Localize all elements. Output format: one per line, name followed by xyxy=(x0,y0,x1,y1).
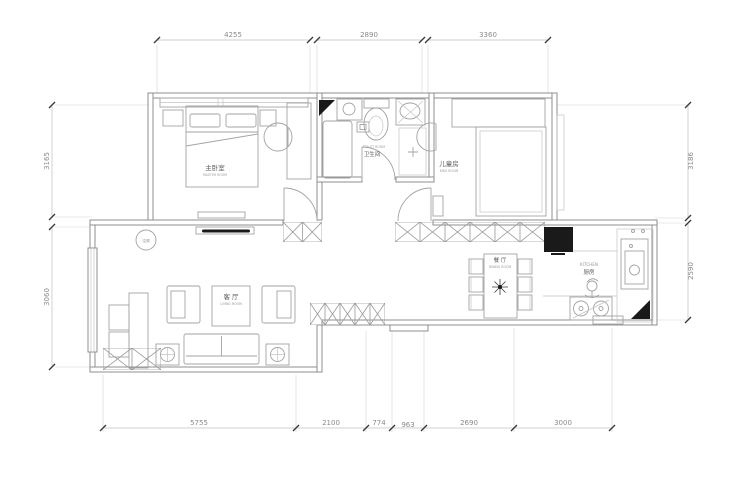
shower xyxy=(323,121,352,178)
counter-edge xyxy=(543,251,617,296)
dim-label: 2100 xyxy=(322,419,340,427)
dim-label: 5755 xyxy=(190,419,208,427)
floor-drain xyxy=(357,122,369,132)
dim-label: 2590 xyxy=(687,262,695,280)
dim-label: 2690 xyxy=(460,419,478,427)
hall-cabinets xyxy=(283,222,545,325)
dim-label: 2890 xyxy=(360,31,378,39)
kids-bed xyxy=(476,127,546,216)
room-kids: 儿童房 KIDS ROOM xyxy=(417,99,546,216)
dimension-top: 4255 2890 3360 xyxy=(154,31,551,93)
corner-triangle xyxy=(631,300,650,319)
washbasin xyxy=(396,99,425,125)
dimension-right: 3186 2590 xyxy=(557,102,695,323)
cabinet-x xyxy=(303,222,323,242)
dim-label: 4255 xyxy=(224,31,242,39)
room-living: 空调 xyxy=(103,227,295,370)
cabinet-x xyxy=(395,222,420,242)
entry-threshold xyxy=(390,325,428,331)
side-table xyxy=(266,344,289,365)
cabinet-x xyxy=(283,222,303,242)
wardrobe xyxy=(287,103,311,179)
bench xyxy=(198,212,245,218)
room-sublabel: LIVING ROOM xyxy=(220,302,242,306)
wall xyxy=(90,225,95,248)
stove xyxy=(570,297,612,320)
toilet xyxy=(364,99,389,140)
room-label: 餐 厅 xyxy=(494,256,507,264)
doors xyxy=(284,147,431,221)
room-label: 卫生间 xyxy=(364,150,381,158)
wall xyxy=(148,93,557,98)
dim-label: 963 xyxy=(401,421,414,429)
wall xyxy=(317,325,322,372)
side-table xyxy=(156,344,179,365)
kitchen-sink xyxy=(621,239,648,289)
room-sublabel: TOILET ROOM xyxy=(362,145,385,149)
hinge-dot xyxy=(632,230,635,233)
wall xyxy=(396,177,434,182)
washing-machine xyxy=(337,99,362,120)
wall-tv xyxy=(544,227,573,255)
coffee-table xyxy=(212,286,250,326)
lounge-chair xyxy=(264,123,292,151)
wall xyxy=(90,220,283,225)
pillow xyxy=(226,114,256,127)
room-master-bedroom: 主卧室 MASTER ROOM xyxy=(163,103,311,218)
small-cabinet xyxy=(433,196,443,216)
dim-label: 3165 xyxy=(43,152,51,170)
armchair xyxy=(262,286,295,323)
sofa xyxy=(184,334,259,364)
dim-label: 774 xyxy=(372,419,386,427)
balcony-ledge xyxy=(557,115,564,210)
ac-marker-label: 空调 xyxy=(142,238,150,243)
wall xyxy=(552,93,557,225)
room-label: 客 厅 xyxy=(223,292,239,301)
floor-plan-drawing: 4255 2890 3360 5755 2100 774 963 2690 30… xyxy=(0,0,740,490)
wall xyxy=(148,93,153,225)
room-label: 主卧室 xyxy=(205,163,225,172)
bath-counter xyxy=(399,128,426,175)
room-sublabel: KIDS ROOM xyxy=(440,169,459,173)
table-centerpiece xyxy=(492,279,508,295)
master-door-arc xyxy=(284,188,317,221)
room-label: KITCHEN xyxy=(580,262,598,267)
wall xyxy=(429,93,434,182)
room-sublabel: MASTER ROOM xyxy=(203,173,227,177)
floor-plan-canvas: 4255 2890 3360 5755 2100 774 963 2690 30… xyxy=(0,0,740,490)
dim-label: 3360 xyxy=(479,31,497,39)
corner-triangle xyxy=(319,100,335,116)
room-dining: 餐 厅 DINING ROOM xyxy=(469,227,573,318)
dim-label: 3186 xyxy=(687,152,695,170)
armchair xyxy=(167,286,200,323)
room-sublabel: 厨房 xyxy=(583,268,595,276)
room-sublabel: DINING ROOM xyxy=(489,265,512,269)
dim-label: 3060 xyxy=(43,288,51,306)
kids-door-arc xyxy=(398,188,431,221)
nightstand xyxy=(163,110,183,126)
ac-marker: 空调 xyxy=(136,230,156,250)
wall xyxy=(90,367,322,372)
faucet-figure xyxy=(585,279,599,298)
room-bathroom: TOILET ROOM 卫生间 xyxy=(319,99,426,178)
dim-label: 3000 xyxy=(554,419,572,427)
wardrobe xyxy=(452,99,545,127)
window xyxy=(88,248,97,352)
room-label: 儿童房 xyxy=(439,159,459,168)
tv xyxy=(196,227,254,234)
pillow xyxy=(190,114,220,127)
hinge-dot xyxy=(642,230,645,233)
